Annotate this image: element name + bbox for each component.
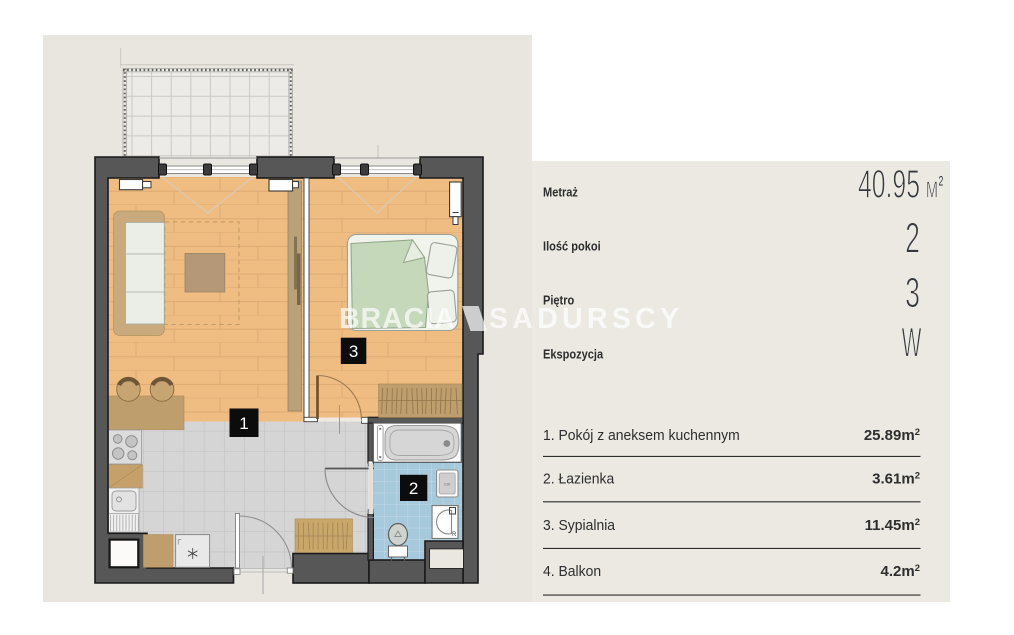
svg-text:2: 2 [905, 214, 920, 262]
svg-text:2: 2 [409, 479, 418, 498]
svg-text:Ilość pokoi: Ilość pokoi [543, 239, 601, 254]
svg-text:W: W [902, 320, 922, 367]
svg-text:0.30: 0.30 [444, 483, 451, 487]
svg-text:M: M [926, 178, 938, 203]
svg-text:3.61m2: 3.61m2 [872, 471, 920, 488]
svg-text:R: R [452, 532, 457, 538]
svg-text:2: 2 [939, 173, 944, 189]
svg-text:SADURSCY: SADURSCY [489, 303, 683, 335]
svg-text:3: 3 [905, 269, 920, 317]
svg-text:3: 3 [349, 342, 358, 361]
svg-text:25.89m2: 25.89m2 [864, 427, 920, 444]
svg-text:2. Łazienka: 2. Łazienka [543, 471, 615, 488]
svg-text:BRACIA: BRACIA [339, 303, 456, 335]
svg-text:40.95: 40.95 [858, 163, 920, 207]
svg-text:Piętro: Piętro [543, 293, 574, 308]
svg-text:11.45m2: 11.45m2 [865, 517, 920, 534]
svg-text:1: 1 [239, 414, 248, 433]
svg-text:Ekspozycja: Ekspozycja [543, 347, 603, 362]
svg-text:3. Sypialnia: 3. Sypialnia [543, 518, 616, 535]
svg-text:Metraż: Metraż [543, 185, 578, 200]
svg-text:4.2m2: 4.2m2 [881, 563, 921, 580]
svg-text:1. Pokój z aneksem kuchennym: 1. Pokój z aneksem kuchennym [543, 428, 740, 445]
svg-text:4. Balkon: 4. Balkon [543, 564, 601, 581]
